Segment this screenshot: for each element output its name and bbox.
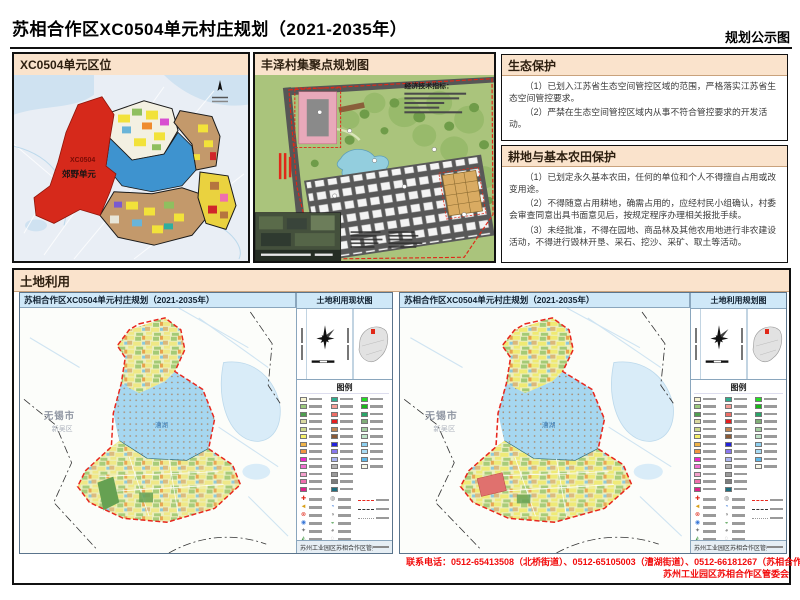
map-type-label: 土地利用现状图 [297, 293, 392, 309]
map-footer-bar: 苏州工业园区苏相合作区管委会 [297, 540, 392, 553]
city-label: 无锡市 [43, 410, 75, 421]
red-annotation-faux [279, 153, 291, 179]
farmland-paragraph-3: （3）未经批准，不得在园地、商品林及其他农用地进行非农建设活动，不得进行毁林开垦… [509, 224, 780, 248]
farmland-protection-box: 耕地与基本农田保护 （1）已划定永久基本农田，任何的单位和个人不得擅自占用或改变… [501, 145, 788, 263]
map-footer-date-faux [767, 546, 783, 549]
lake-label: 漕湖 [542, 420, 556, 429]
legend-item [361, 419, 389, 425]
vertical-label-right [343, 309, 353, 379]
legend-item [755, 441, 783, 447]
legend-item [755, 456, 783, 462]
eco-protection-body: （1）已划入江苏省生态空间管控区域的范围，严格落实江苏省生态空间管控要求。 （2… [502, 76, 787, 135]
map-footer-date-faux [373, 546, 389, 549]
contact-info: 联系电话：0512-65413508（北桥街道）、0512-65105003（漕… [406, 557, 791, 580]
legend-item [331, 441, 359, 447]
notice-type-label: 规划公示图 [725, 27, 790, 46]
legend-item [694, 486, 722, 492]
legend-line [358, 514, 389, 522]
legend-item [725, 471, 753, 477]
legend-item [755, 434, 783, 440]
fengze-plan-svg: 经济技术指标： [255, 75, 494, 261]
legend-symbol: ◕ [329, 528, 354, 535]
legend-column-1 [694, 396, 722, 492]
legend-symbol: ⊗ [300, 512, 325, 519]
legend-symbol: ◑ [723, 512, 748, 519]
legend-item [361, 411, 389, 417]
legend-symbol: ◔ [723, 504, 748, 511]
vertical-label-left [297, 309, 307, 379]
legend-symbol: ◒ [723, 520, 748, 527]
legend-item [725, 434, 753, 440]
legend-item [300, 411, 328, 417]
legend-item [725, 419, 753, 425]
legend-item [331, 471, 359, 477]
legend-item [300, 419, 328, 425]
district-label: 新吴区 [433, 424, 455, 433]
legend-item [694, 434, 722, 440]
legend-title: 图例 [694, 382, 783, 394]
legend-item [694, 464, 722, 470]
symbol-column-2: ◍◔◑◒◕◌ [329, 496, 354, 540]
legend-column-2 [331, 396, 359, 492]
farmland-paragraph-1: （1）已划定永久基本农田，任何的单位和个人不得擅自占用或改变用途。 [509, 171, 780, 195]
legend-column-3 [755, 396, 783, 492]
legend-symbol: ◉ [300, 520, 325, 527]
legend-column-1 [300, 396, 328, 492]
legend-item [725, 464, 753, 470]
unit-location-map: XC0504 郊野单元 [14, 75, 248, 261]
map-title-bar: 苏相合作区XC0504单元村庄规划（2021-2035年） [400, 293, 690, 308]
title-divider [10, 47, 792, 49]
legend-line [752, 514, 783, 522]
legend-item [331, 479, 359, 485]
legend-item [361, 434, 389, 440]
wind-rose-icon [307, 309, 343, 379]
legend-item [694, 411, 722, 417]
legend-item [331, 449, 359, 455]
contact-line-1: 联系电话：0512-65413508（北桥街道）、0512-65105003（漕… [406, 557, 791, 569]
map-sidebar: 土地利用现状图 [296, 293, 392, 553]
legend-item [300, 449, 328, 455]
legend-item [300, 426, 328, 432]
legend-item [725, 486, 753, 492]
unit-code-label: XC0504 [70, 157, 95, 164]
land-use-map-current: 苏相合作区XC0504单元村庄规划（2021-2035年） [19, 292, 393, 554]
wind-rose-icon [701, 309, 737, 379]
legend-item [300, 464, 328, 470]
unit-location-panel-title: XC0504单元区位 [14, 54, 248, 76]
legend-title: 图例 [300, 382, 389, 394]
legend-item [694, 441, 722, 447]
legend-symbol: ✚ [694, 496, 719, 503]
legend-line [358, 496, 389, 504]
legend-item [300, 434, 328, 440]
indicator-title: 经济技术指标： [404, 81, 453, 90]
legend-column-2 [725, 396, 753, 492]
legend-item [694, 479, 722, 485]
legend-item [725, 404, 753, 410]
legend-item [755, 419, 783, 425]
planning-notice-poster: 苏相合作区XC0504单元村庄规划（2021-2035年） 规划公示图 XC05… [0, 0, 800, 600]
legend-item [331, 411, 359, 417]
legend-item [361, 456, 389, 462]
fengze-plan-panel-title: 丰泽村集聚点规划图 [255, 54, 494, 76]
legend-line [358, 505, 389, 513]
legend-item [300, 479, 328, 485]
vertical-label-right [737, 309, 747, 379]
land-use-map-planned: 苏相合作区XC0504单元村庄规划（2021-2035年） [399, 292, 787, 554]
legend-item [725, 411, 753, 417]
legend-item [331, 464, 359, 470]
district-label: 新吴区 [52, 424, 73, 433]
land-use-panel-title: 土地利用 [14, 270, 789, 292]
symbol-column-2: ◍◔◑◒◕◌ [723, 496, 748, 540]
city-label: 无锡市 [424, 410, 458, 422]
map-title-bar: 苏相合作区XC0504单元村庄规划（2021-2035年） [20, 293, 296, 308]
fengze-plan-map: 经济技术指标： [255, 75, 494, 261]
eco-protection-box: 生态保护 （1）已划入江苏省生态空间管控区域的范围，严格落实江苏省生态空间管控要… [501, 54, 788, 141]
legend-item [300, 456, 328, 462]
legend-item [725, 396, 753, 402]
legend-box: 图例 ✚◄⊗◉✦◭ ◍◔◑◒◕◌ [297, 380, 392, 540]
legend-item [694, 426, 722, 432]
legend-item [755, 411, 783, 417]
legend-item [755, 464, 783, 470]
legend-symbol: ◄ [694, 504, 719, 511]
vertical-label-left [691, 309, 701, 379]
legend-symbol: ✚ [300, 496, 325, 503]
map-type-label: 土地利用规划图 [691, 293, 786, 309]
legend-item [694, 456, 722, 462]
aerial-photo-inset [255, 213, 341, 261]
farmland-paragraph-2: （2）不得随意占用耕地，确需占用的，应经村民小组确认，村委会审查同意出具书面意见… [509, 197, 780, 221]
legend-item [725, 479, 753, 485]
legend-box: 图例 ✚◄⊗◉✦◭ ◍◔◑◒◕◌ [691, 380, 786, 540]
unit-location-map-svg: XC0504 郊野单元 [14, 75, 248, 261]
legend-item [361, 449, 389, 455]
legend-symbol: ◕ [723, 528, 748, 535]
legend-symbol: ⊗ [694, 512, 719, 519]
line-legend-column [358, 496, 389, 540]
legend-item [755, 396, 783, 402]
legend-item [694, 449, 722, 455]
legend-item [300, 486, 328, 492]
legend-item [300, 396, 328, 402]
symbol-column-1: ✚◄⊗◉✦◭ [694, 496, 719, 540]
map-canvas: 无锡市 新吴区 漕湖 [20, 308, 296, 553]
legend-item [725, 426, 753, 432]
legend-symbol: ◑ [329, 512, 354, 519]
compass-block [297, 309, 392, 380]
legend-symbol: ◉ [694, 520, 719, 527]
legend-item [331, 434, 359, 440]
map-footer-text: 苏州工业园区苏相合作区管委会 [300, 543, 373, 552]
legend-item [694, 419, 722, 425]
legend-item [361, 441, 389, 447]
map-footer-text: 苏州工业园区苏相合作区管委会 [694, 543, 767, 552]
legend-item [361, 396, 389, 402]
farmland-protection-title: 耕地与基本农田保护 [502, 146, 787, 167]
fengze-plan-panel: 丰泽村集聚点规划图 [253, 52, 496, 263]
legend-item [755, 404, 783, 410]
legend-item [755, 449, 783, 455]
legend-item [331, 486, 359, 492]
legend-symbol: ✦ [300, 528, 325, 535]
legend-item [331, 419, 359, 425]
legend-item [694, 471, 722, 477]
legend-symbol: ✦ [694, 528, 719, 535]
line-legend-column [752, 496, 783, 540]
compass-block [691, 309, 786, 380]
lake-label: 漕湖 [155, 420, 168, 429]
legend-item [300, 471, 328, 477]
symbol-column-1: ✚◄⊗◉✦◭ [300, 496, 325, 540]
legend-symbol: ◍ [329, 496, 354, 503]
legend-symbol: ◔ [329, 504, 354, 511]
inset-location-map [747, 309, 786, 379]
inset-location-map [353, 309, 392, 379]
legend-item [725, 441, 753, 447]
legend-symbol: ◄ [300, 504, 325, 511]
legend-item [300, 404, 328, 410]
legend-item [725, 449, 753, 455]
legend-item [361, 426, 389, 432]
legend-item [331, 456, 359, 462]
contact-line-2: 苏州工业园区苏相合作区管委会 [406, 569, 789, 581]
legend-item [331, 426, 359, 432]
legend-item [725, 456, 753, 462]
protection-text-panel: 生态保护 （1）已划入江苏省生态空间管控区域的范围，严格落实江苏省生态空间管控要… [498, 52, 791, 263]
legend-item [361, 464, 389, 470]
legend-item [331, 396, 359, 402]
legend-line [752, 496, 783, 504]
legend-item [361, 404, 389, 410]
legend-item [755, 426, 783, 432]
map-canvas: 无锡市 新吴区 漕湖 [400, 308, 690, 553]
farmland-protection-body: （1）已划定永久基本农田，任何的单位和个人不得擅自占用或改变用途。 （2）不得随… [502, 167, 787, 252]
unit-location-panel: XC0504单元区位 [12, 52, 250, 263]
legend-column-3 [361, 396, 389, 492]
eco-protection-title: 生态保护 [502, 55, 787, 76]
map-sidebar: 土地利用规划图 [690, 293, 786, 553]
eco-paragraph-2: （2）严禁在生态空间管控区域内从事不符合管控要求的开发活动。 [509, 106, 780, 130]
legend-symbol: ◒ [329, 520, 354, 527]
legend-symbol: ◍ [723, 496, 748, 503]
page-title: 苏相合作区XC0504单元村庄规划（2021-2035年） [12, 15, 407, 40]
legend-item [694, 396, 722, 402]
unit-type-label: 郊野单元 [62, 169, 96, 179]
land-use-panel: 土地利用 苏相合作区XC0504单元村庄规划（2021-2035年） [12, 268, 791, 585]
legend-item [300, 441, 328, 447]
legend-item [694, 404, 722, 410]
legend-line [752, 505, 783, 513]
legend-item [331, 404, 359, 410]
map-footer-bar: 苏州工业园区苏相合作区管委会 [691, 540, 786, 553]
eco-paragraph-1: （1）已划入江苏省生态空间管控区域的范围，严格落实江苏省生态空间管控要求。 [509, 80, 780, 104]
